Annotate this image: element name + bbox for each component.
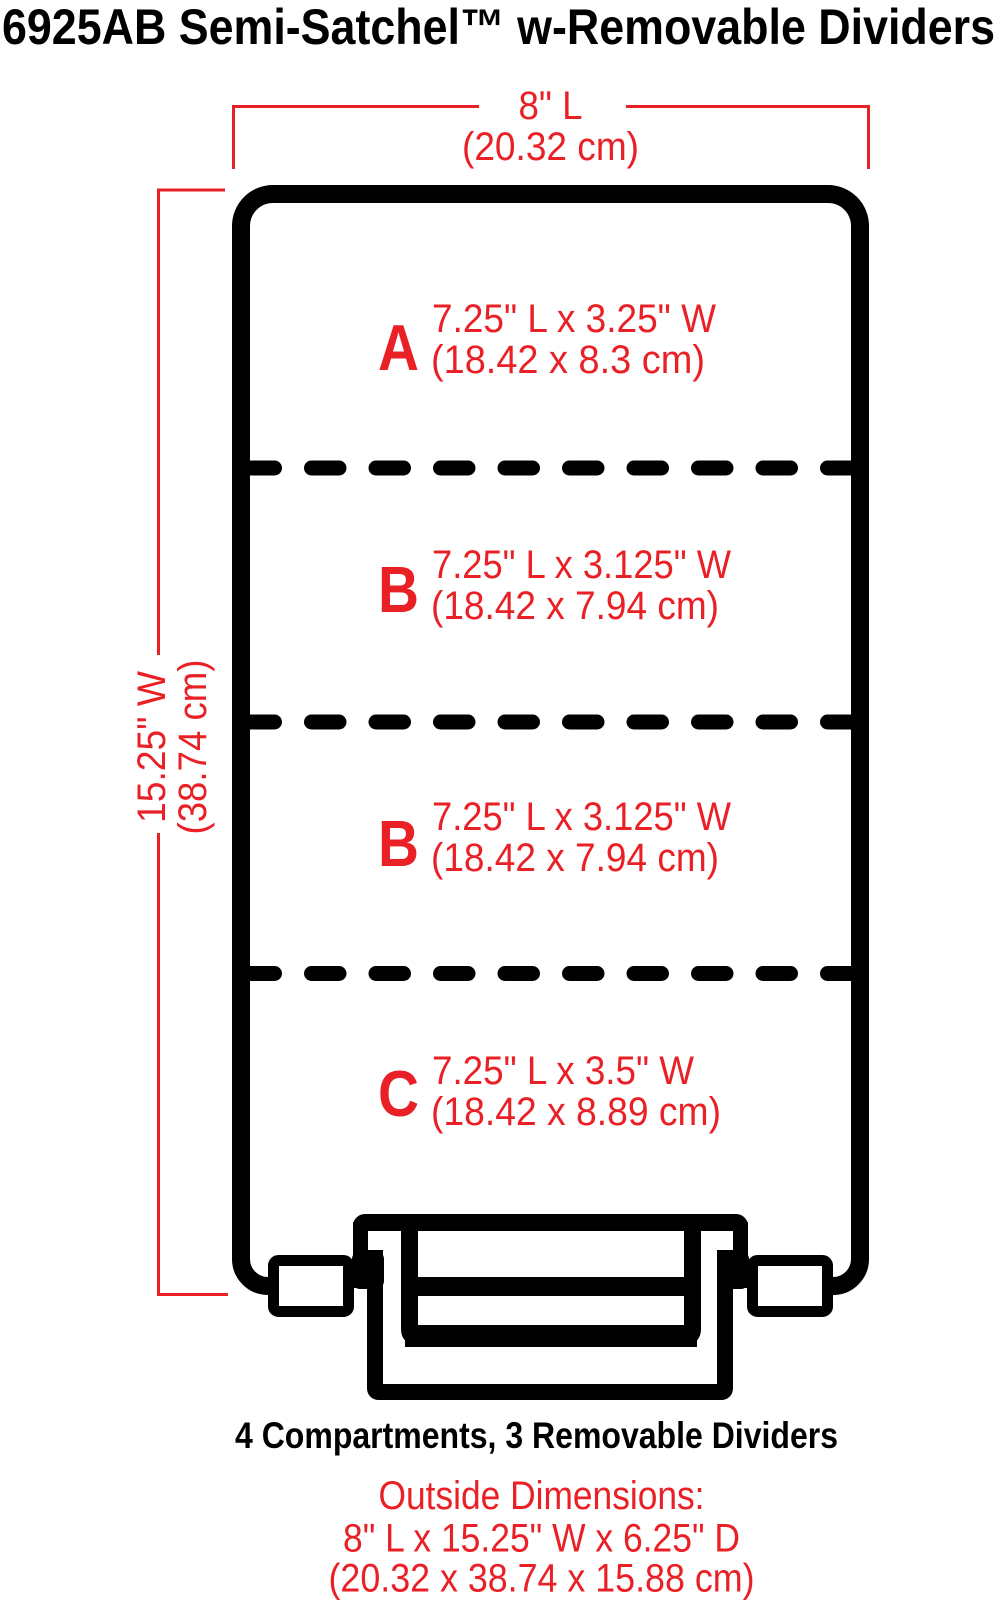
- svg-text:8" L: 8" L: [519, 84, 583, 128]
- svg-text:7.25" L x 3.125" W: 7.25" L x 3.125" W: [432, 543, 731, 587]
- svg-text:7.25" L x 3.25" W: 7.25" L x 3.25" W: [432, 297, 716, 341]
- svg-text:A: A: [378, 311, 419, 384]
- svg-text:6925AB Semi-Satchel™ w-Removab: 6925AB Semi-Satchel™ w-Removable Divider…: [2, 0, 995, 55]
- svg-text:(20.32 cm): (20.32 cm): [462, 125, 639, 169]
- svg-text:4 Compartments, 3 Removable Di: 4 Compartments, 3 Removable Dividers: [235, 1414, 838, 1456]
- svg-text:(18.42 x 8.3 cm): (18.42 x 8.3 cm): [431, 338, 705, 382]
- svg-text:(18.42 x 8.89 cm): (18.42 x 8.89 cm): [431, 1090, 721, 1134]
- svg-text:7.25" L x 3.5" W: 7.25" L x 3.5" W: [432, 1049, 694, 1093]
- svg-text:15.25" W: 15.25" W: [130, 671, 174, 823]
- svg-text:7.25" L x 3.125" W: 7.25" L x 3.125" W: [432, 795, 731, 839]
- svg-text:B: B: [378, 553, 419, 626]
- svg-text:8" L x 15.25" W x 6.25" D: 8" L x 15.25" W x 6.25" D: [343, 1517, 740, 1561]
- svg-text:Outside Dimensions:: Outside Dimensions:: [379, 1474, 705, 1518]
- svg-text:C: C: [378, 1057, 419, 1130]
- svg-text:B: B: [378, 807, 419, 880]
- svg-text:(18.42 x 7.94 cm): (18.42 x 7.94 cm): [431, 836, 719, 880]
- svg-text:(38.74 cm): (38.74 cm): [171, 660, 215, 835]
- svg-text:(18.42 x 7.94 cm): (18.42 x 7.94 cm): [431, 584, 719, 628]
- svg-text:(20.32 x 38.74 x 15.88 cm): (20.32 x 38.74 x 15.88 cm): [329, 1557, 755, 1600]
